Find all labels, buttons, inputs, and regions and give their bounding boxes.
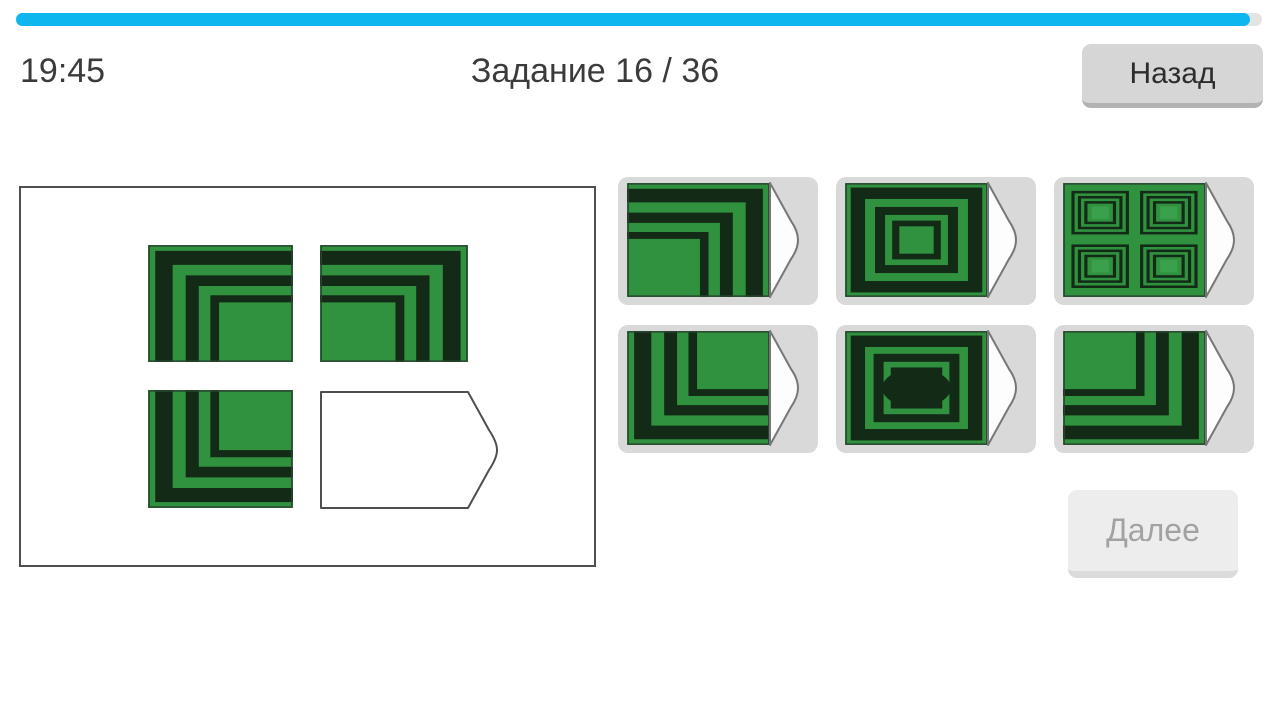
option-4-pattern (627, 331, 770, 445)
option-card-4[interactable] (618, 325, 818, 453)
option-6-pattern (1063, 331, 1206, 445)
option-5-pointer-tab (988, 331, 1016, 445)
option-6-pointer-tab (1206, 331, 1234, 445)
tile-top-left (148, 245, 293, 362)
option-2-pointer-tab (988, 183, 1016, 297)
tile-bottom-left (148, 390, 293, 508)
option-3-pattern (1063, 183, 1206, 297)
option-card-3[interactable] (1054, 177, 1254, 305)
answer-options (618, 177, 1254, 453)
option-card-5[interactable] (836, 325, 1036, 453)
next-button[interactable]: Далее (1068, 490, 1238, 578)
option-card-1[interactable] (618, 177, 818, 305)
page-title: Задание 16 / 36 (0, 52, 1190, 91)
option-5-pattern (845, 331, 988, 445)
option-card-2[interactable] (836, 177, 1036, 305)
progress-fill (16, 13, 1250, 26)
puzzle-board (19, 186, 596, 567)
back-button[interactable]: Назад (1082, 44, 1263, 108)
option-2-pattern (845, 183, 988, 297)
empty-slot (321, 392, 497, 508)
option-1-pattern (627, 183, 770, 297)
option-card-6[interactable] (1054, 325, 1254, 453)
option-3-pointer-tab (1206, 183, 1234, 297)
option-1-pointer-tab (770, 183, 798, 297)
tile-top-right (320, 245, 468, 362)
progress-bar (16, 13, 1262, 26)
puzzle-board-figure (21, 188, 594, 565)
option-4-pointer-tab (770, 331, 798, 445)
